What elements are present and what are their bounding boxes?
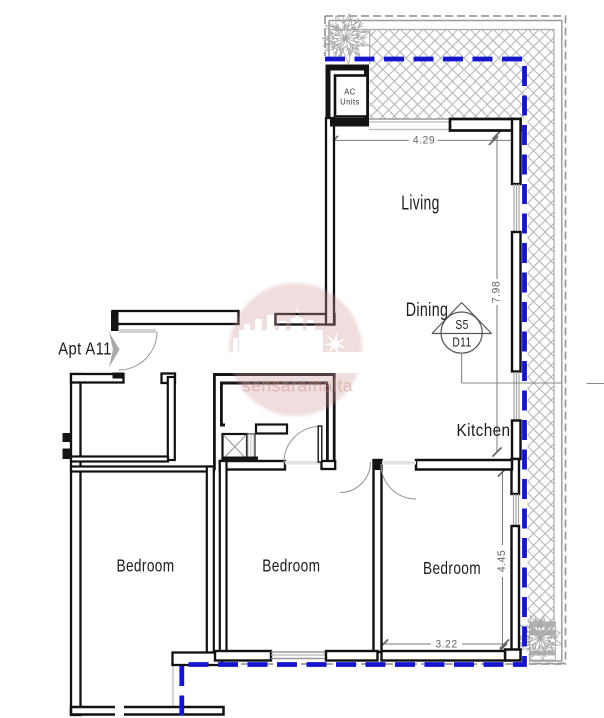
svg-text:sensaramalta: sensaramalta [242, 376, 353, 396]
svg-text:Bedroom: Bedroom [116, 557, 174, 576]
svg-text:AC: AC [344, 87, 356, 96]
svg-text:7.98: 7.98 [490, 281, 502, 303]
svg-text:3.22: 3.22 [435, 638, 457, 650]
svg-text:4.29: 4.29 [413, 134, 435, 146]
svg-text:S5: S5 [455, 319, 468, 332]
svg-text:4.45: 4.45 [496, 550, 508, 572]
svg-text:Kitchen: Kitchen [457, 420, 511, 440]
svg-text:Apt A11: Apt A11 [58, 339, 111, 359]
svg-text:D11: D11 [452, 337, 471, 350]
svg-text:Bedroom: Bedroom [262, 557, 320, 576]
svg-text:Dining: Dining [406, 299, 449, 320]
svg-text:Living: Living [401, 191, 439, 214]
svg-text:Bedroom: Bedroom [423, 559, 481, 578]
svg-text:Units: Units [340, 97, 360, 106]
